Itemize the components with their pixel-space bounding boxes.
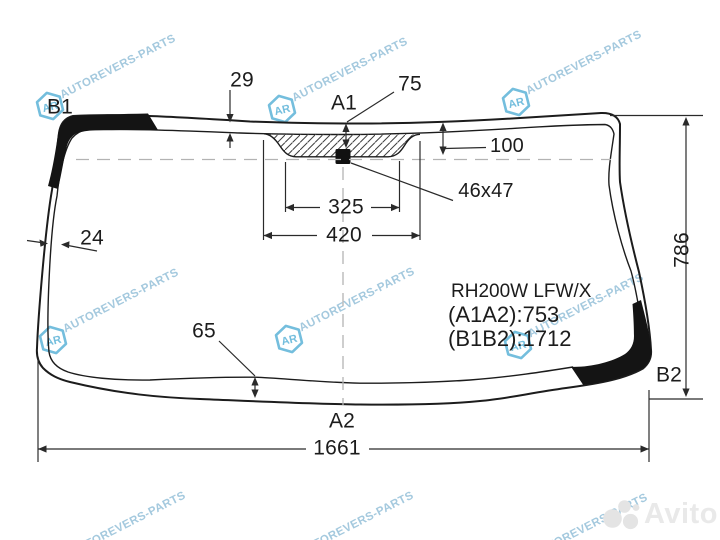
avito-logo [0, 0, 720, 540]
windshield-diagram-image: ARAUTOREVERS-PARTSARAUTOREVERS-PARTSARAU… [0, 0, 720, 540]
avito-logo-text: Avito [644, 498, 718, 531]
avito-logo-circles [603, 500, 639, 529]
